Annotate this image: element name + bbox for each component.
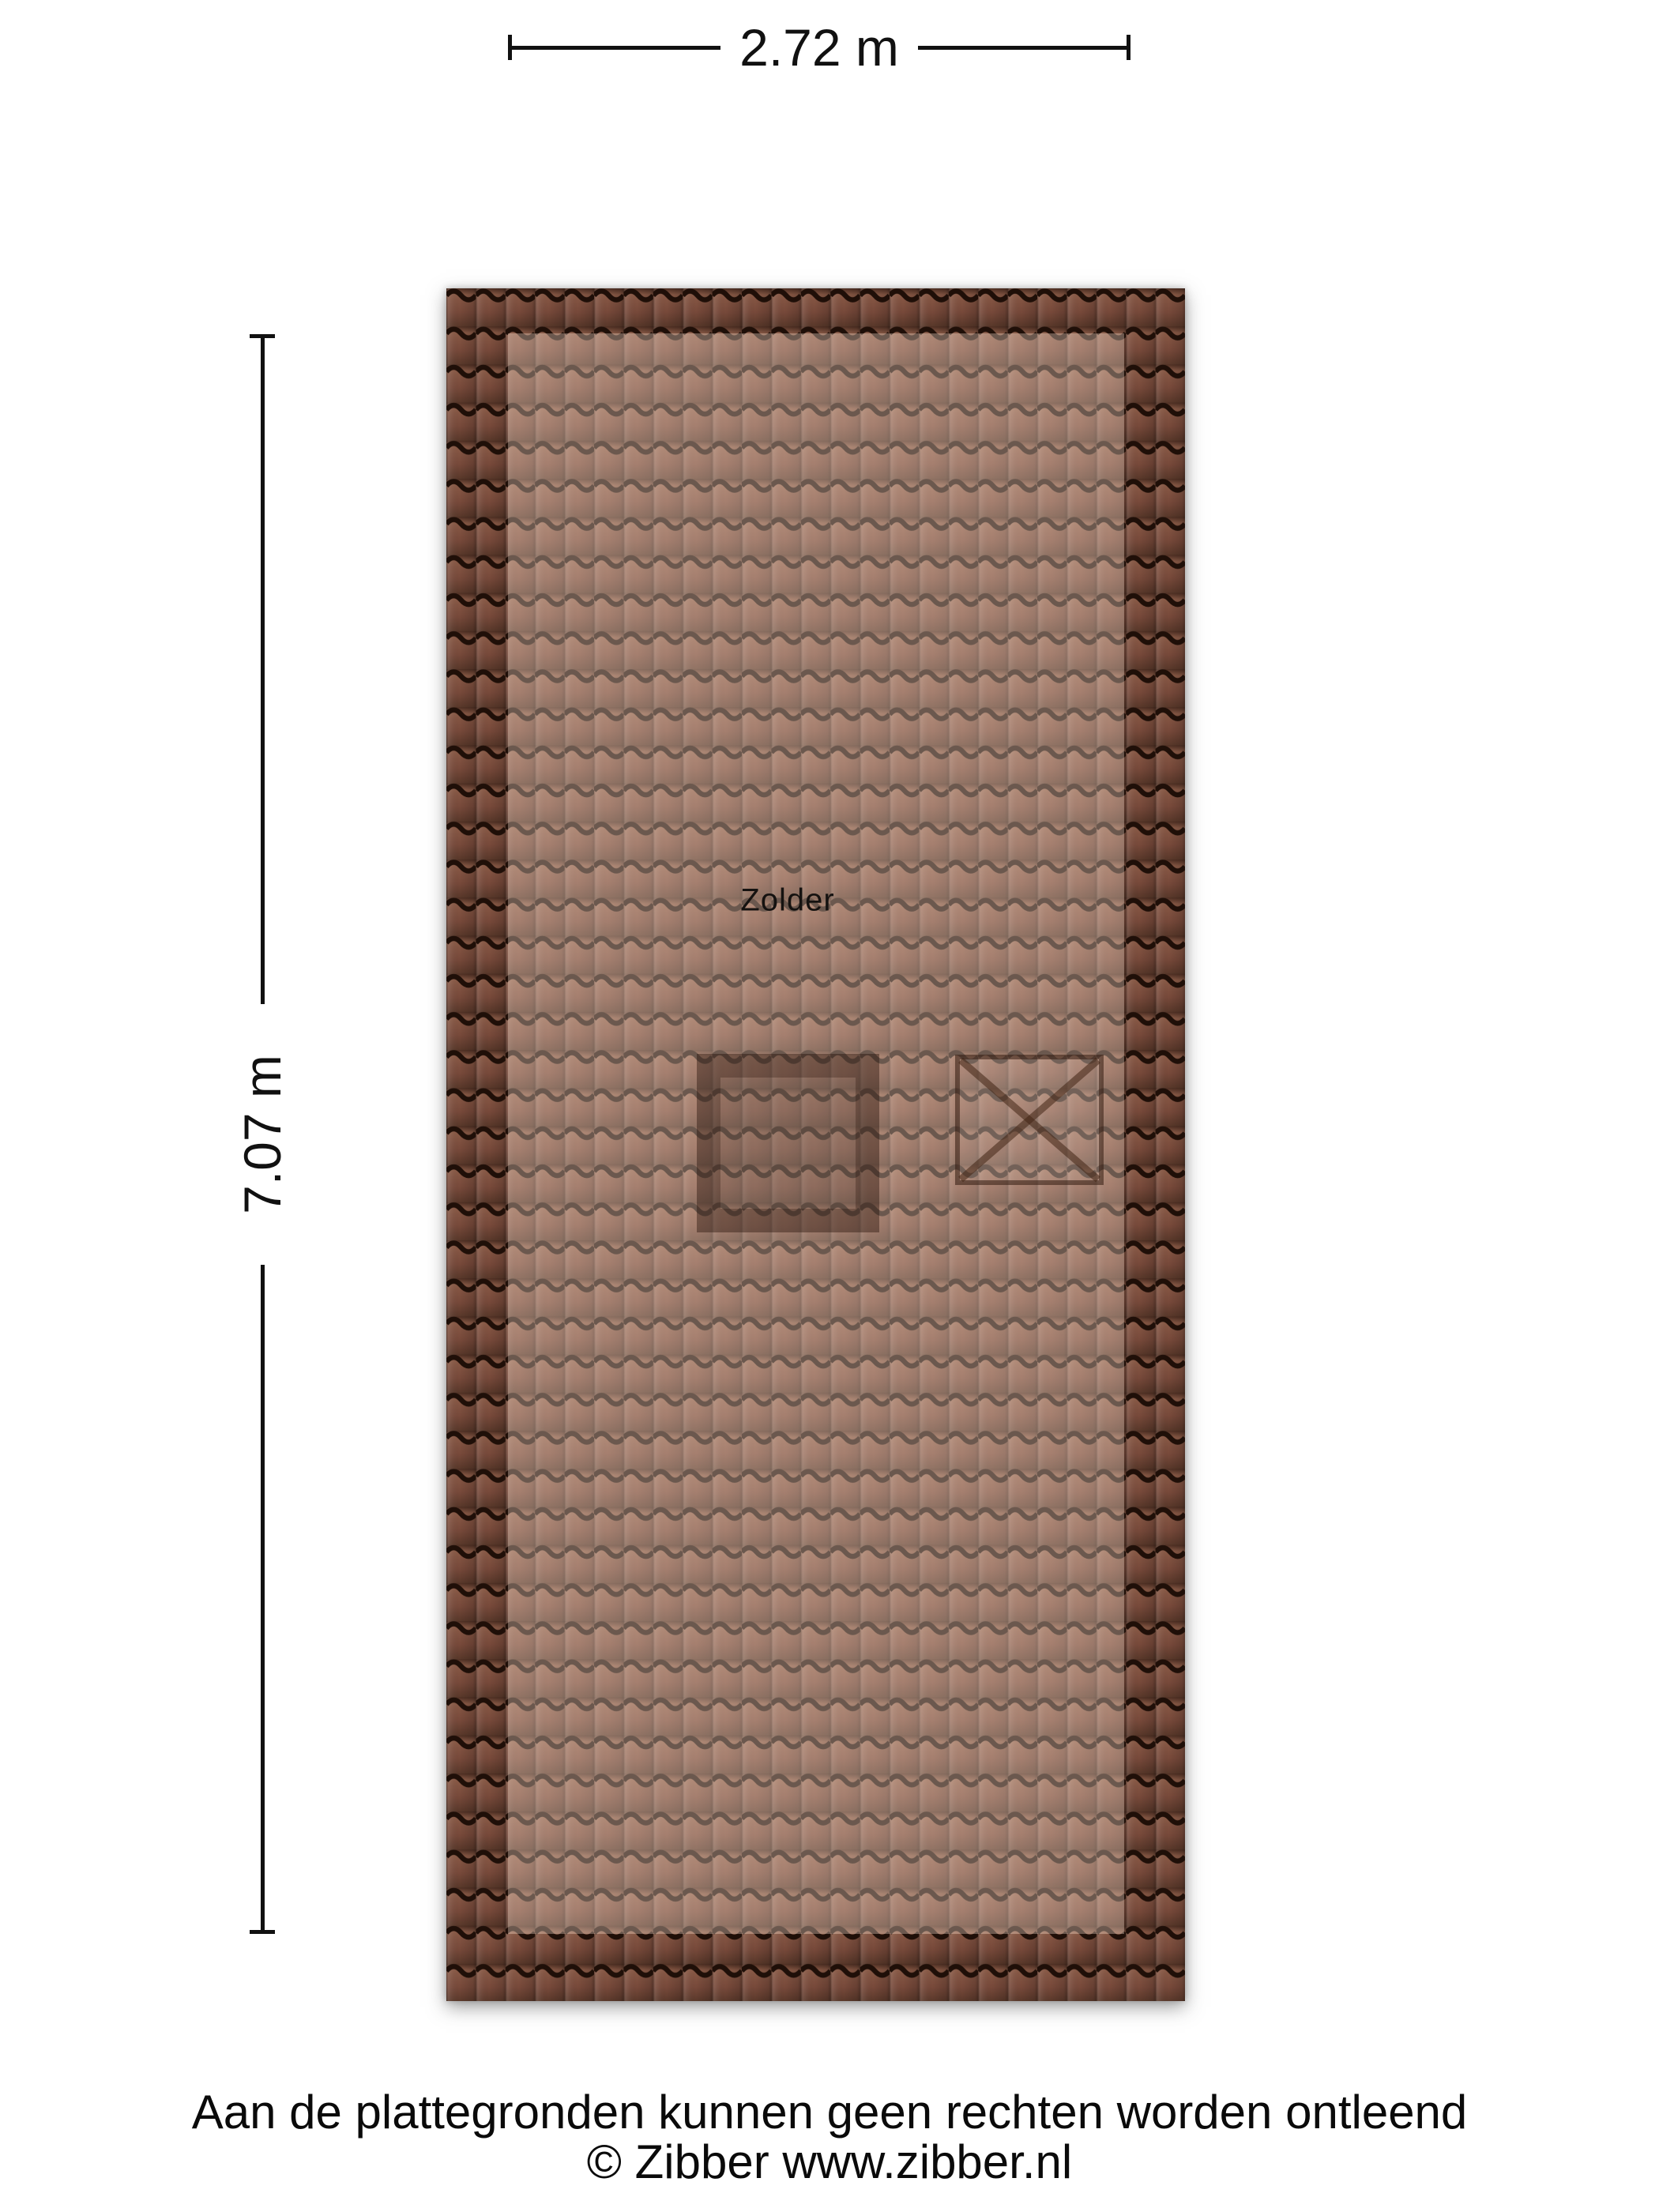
roof-plan-svg — [446, 288, 1185, 2001]
dimension-line-right-segment — [918, 46, 1127, 50]
room-label: Zolder — [740, 883, 834, 919]
skylight-feature — [957, 1057, 1101, 1183]
dimension-height-label: 7.07 m — [236, 1055, 288, 1214]
dimension-line-left-segment — [512, 46, 720, 50]
footer: Aan de plattegronden kunnen geen rechten… — [0, 2087, 1659, 2187]
copyright-text: © Zibber www.zibber.nl — [0, 2137, 1659, 2187]
dimension-tick-right — [1127, 35, 1130, 60]
floorplan-page: 2.72 m 7.07 m — [0, 0, 1659, 2212]
dimension-line-bottom-segment — [261, 1265, 265, 1931]
dimension-tick-bottom — [250, 1930, 275, 1934]
chimney-feature-center — [720, 1078, 856, 1209]
disclaimer-text: Aan de plattegronden kunnen geen rechten… — [0, 2087, 1659, 2137]
dimension-height-label-wrap: 7.07 m — [250, 1004, 275, 1265]
roof-plan: Zolder — [446, 288, 1185, 2001]
dimension-height: 7.07 m — [250, 334, 275, 1934]
dimension-width: 2.72 m — [508, 35, 1130, 60]
dimension-width-label: 2.72 m — [739, 21, 899, 73]
dimension-line-top-segment — [261, 338, 265, 1004]
